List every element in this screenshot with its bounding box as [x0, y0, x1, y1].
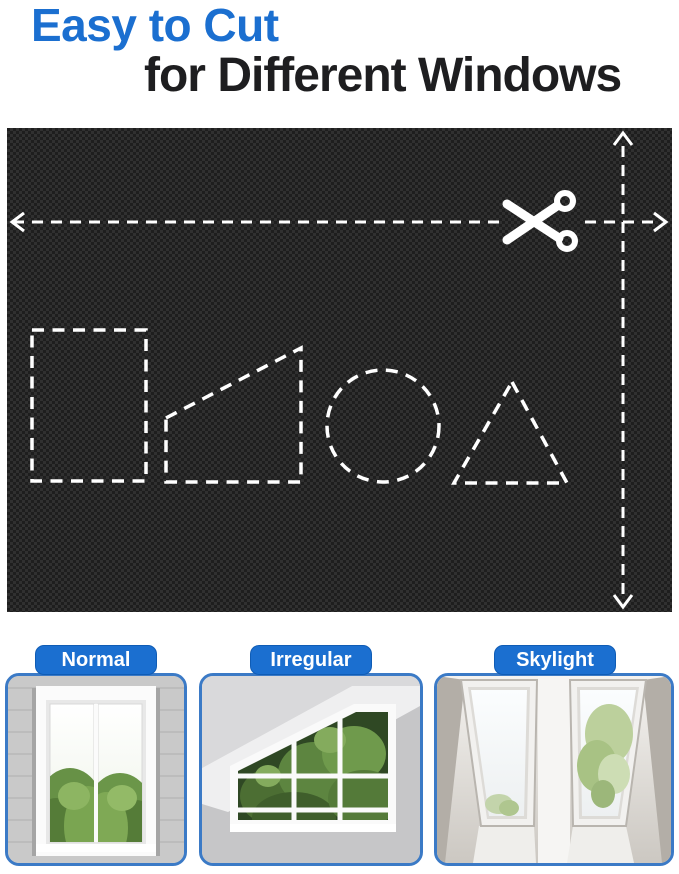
- normal-window-illustration: [8, 676, 184, 863]
- title-line-2: for Different Windows: [144, 50, 621, 103]
- card-label-irregular: Irregular: [250, 645, 372, 675]
- skylight-window-illustration: [437, 676, 671, 863]
- cut-shape-circle: [327, 370, 439, 482]
- card-label-skylight: Skylight: [494, 645, 616, 675]
- arrow-right-icon: [654, 213, 666, 231]
- cut-shape-triangle: [454, 382, 567, 483]
- cut-guide-overlay: [7, 128, 672, 612]
- scissors-icon: [507, 193, 575, 249]
- product-infographic: Easy to Cut for Different Windows: [0, 0, 679, 874]
- title-line-1: Easy to Cut: [31, 0, 279, 51]
- window-card-skylight: [434, 673, 674, 866]
- fabric-swatch: [7, 128, 672, 612]
- arrow-up-icon: [614, 133, 632, 145]
- arrow-down-icon: [614, 595, 632, 607]
- window-card-normal: [5, 673, 187, 866]
- window-card-irregular: [199, 673, 423, 866]
- cut-shape-trapezoid: [166, 348, 301, 482]
- card-label-normal: Normal: [35, 645, 157, 675]
- irregular-window-illustration: [202, 676, 420, 863]
- cut-shape-rectangle: [32, 330, 146, 481]
